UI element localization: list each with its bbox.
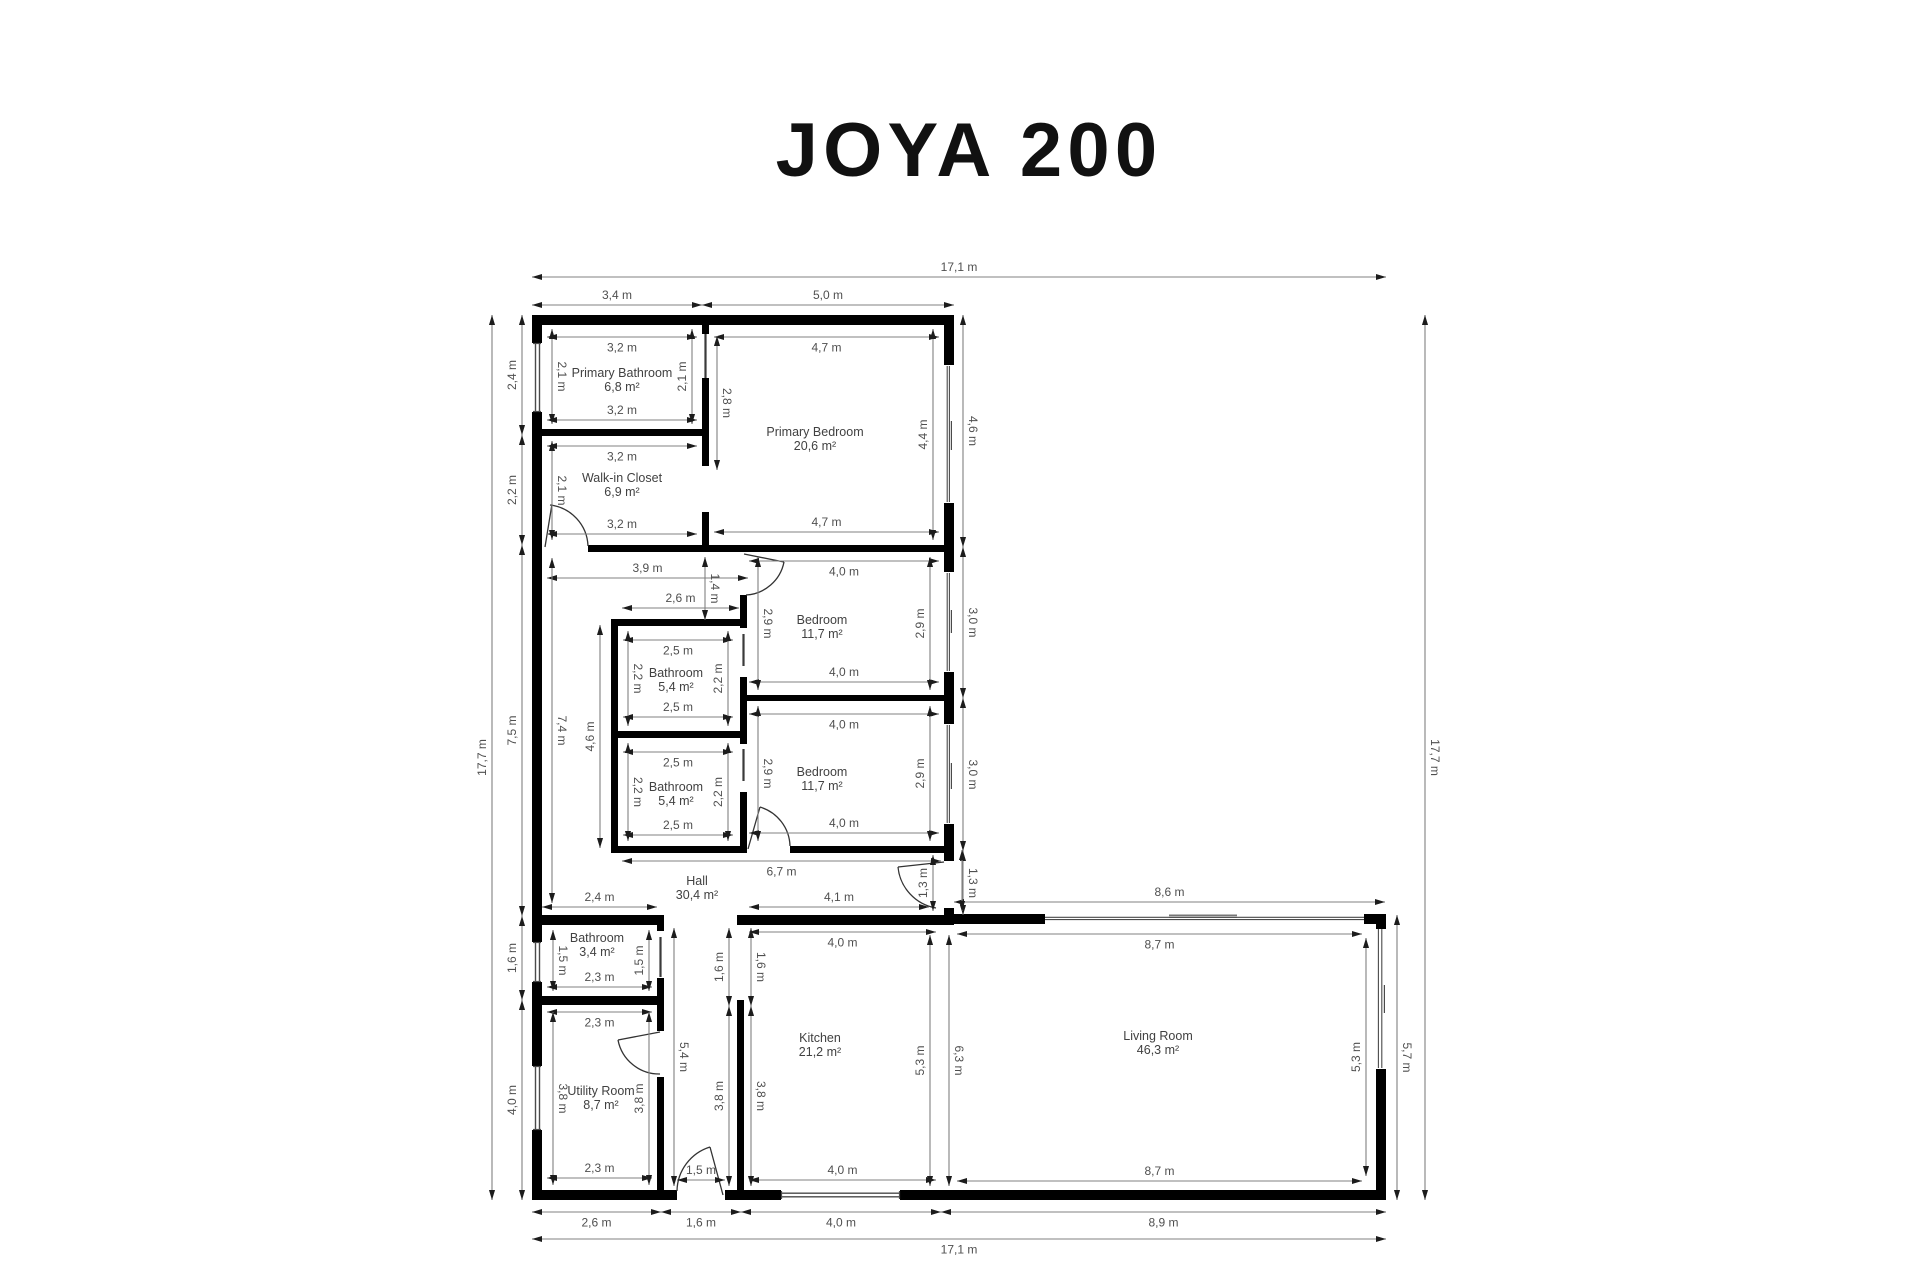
svg-text:8,7 m²: 8,7 m² [583,1098,618,1112]
svg-text:17,7 m: 17,7 m [475,739,489,776]
svg-text:2,9 m: 2,9 m [913,758,927,788]
svg-text:8,7 m: 8,7 m [1144,1164,1174,1178]
svg-text:4,0 m: 4,0 m [505,1085,519,1115]
svg-text:17,1 m: 17,1 m [941,1243,978,1257]
svg-text:5,3 m: 5,3 m [1349,1042,1363,1072]
svg-text:1,5 m: 1,5 m [686,1163,716,1177]
svg-text:JOYA 200: JOYA 200 [776,108,1163,193]
svg-text:3,2 m: 3,2 m [607,403,637,417]
svg-text:4,0 m: 4,0 m [829,565,859,579]
svg-text:4,7 m: 4,7 m [811,341,841,355]
svg-text:4,6 m: 4,6 m [583,721,597,751]
svg-text:5,4 m²: 5,4 m² [658,794,693,808]
svg-text:4,4 m: 4,4 m [916,419,930,449]
svg-text:17,1 m: 17,1 m [941,260,978,274]
svg-text:Bedroom: Bedroom [797,765,848,779]
svg-text:Bathroom: Bathroom [649,666,703,680]
svg-text:3,2 m: 3,2 m [607,517,637,531]
svg-text:Kitchen: Kitchen [799,1031,841,1045]
svg-text:2,2 m: 2,2 m [631,663,645,693]
svg-text:Living Room: Living Room [1123,1029,1192,1043]
svg-text:2,1 m: 2,1 m [675,361,689,391]
svg-text:2,9 m: 2,9 m [913,608,927,638]
svg-text:3,8 m: 3,8 m [754,1081,768,1111]
svg-text:2,5 m: 2,5 m [663,756,693,770]
svg-text:2,3 m: 2,3 m [584,1161,614,1175]
svg-text:1,6 m: 1,6 m [712,952,726,982]
svg-text:4,0 m: 4,0 m [829,665,859,679]
svg-text:2,5 m: 2,5 m [663,700,693,714]
svg-text:5,3 m: 5,3 m [913,1045,927,1075]
svg-text:6,3 m: 6,3 m [952,1045,966,1075]
svg-text:Primary Bathroom: Primary Bathroom [572,366,673,380]
svg-text:2,3 m: 2,3 m [584,970,614,984]
svg-text:2,9 m: 2,9 m [761,608,775,638]
svg-text:2,4 m: 2,4 m [584,890,614,904]
svg-text:Bathroom: Bathroom [649,780,703,794]
svg-text:2,6 m: 2,6 m [581,1216,611,1230]
svg-text:1,5 m: 1,5 m [632,945,646,975]
svg-text:2,5 m: 2,5 m [663,818,693,832]
svg-text:1,6 m: 1,6 m [505,943,519,973]
svg-text:3,4 m²: 3,4 m² [579,945,614,959]
svg-text:2,9 m: 2,9 m [761,758,775,788]
svg-text:4,0 m: 4,0 m [826,1216,856,1230]
svg-text:Bathroom: Bathroom [570,931,624,945]
svg-text:3,2 m: 3,2 m [607,341,637,355]
svg-text:Utility Room: Utility Room [567,1084,634,1098]
svg-text:21,2 m²: 21,2 m² [799,1045,841,1059]
svg-text:8,7 m: 8,7 m [1144,938,1174,952]
svg-text:2,3 m: 2,3 m [584,1016,614,1030]
svg-text:1,3 m: 1,3 m [916,868,930,898]
svg-text:3,0 m: 3,0 m [966,607,980,637]
svg-text:8,6 m: 8,6 m [1154,885,1184,899]
svg-text:7,4 m: 7,4 m [555,715,569,745]
svg-text:2,6 m: 2,6 m [665,591,695,605]
svg-text:11,7 m²: 11,7 m² [801,779,842,793]
svg-text:8,9 m: 8,9 m [1148,1216,1178,1230]
svg-text:3,2 m: 3,2 m [607,450,637,464]
svg-text:4,0 m: 4,0 m [827,1163,857,1177]
svg-text:2,2 m: 2,2 m [505,475,519,505]
svg-text:Primary Bedroom: Primary Bedroom [766,425,863,439]
svg-text:3,4 m: 3,4 m [602,288,632,302]
svg-text:5,0 m: 5,0 m [813,288,843,302]
svg-text:6,8 m²: 6,8 m² [604,380,639,394]
svg-text:7,5 m: 7,5 m [505,715,519,745]
svg-text:1,4 m: 1,4 m [708,573,722,603]
svg-text:4,1 m: 4,1 m [824,890,854,904]
svg-text:4,0 m: 4,0 m [829,816,859,830]
svg-text:3,0 m: 3,0 m [966,759,980,789]
svg-text:3,8 m: 3,8 m [712,1081,726,1111]
svg-text:1,3 m: 1,3 m [966,868,980,898]
svg-text:4,6 m: 4,6 m [966,416,980,446]
svg-text:5,7 m: 5,7 m [1400,1042,1414,1072]
svg-text:Walk-in Closet: Walk-in Closet [582,471,663,485]
svg-text:20,6 m²: 20,6 m² [794,439,836,453]
svg-text:2,8 m: 2,8 m [720,388,734,418]
svg-text:1,5 m: 1,5 m [556,945,570,975]
svg-text:5,4 m²: 5,4 m² [658,680,693,694]
svg-text:30,4 m²: 30,4 m² [676,888,718,902]
svg-text:2,5 m: 2,5 m [663,644,693,658]
svg-text:4,0 m: 4,0 m [827,936,857,950]
svg-text:6,9 m²: 6,9 m² [604,485,639,499]
svg-text:2,2 m: 2,2 m [631,777,645,807]
svg-text:17,7 m: 17,7 m [1428,739,1442,776]
svg-text:1,6 m: 1,6 m [686,1216,716,1230]
svg-text:2,1 m: 2,1 m [555,361,569,391]
svg-text:2,2 m: 2,2 m [711,777,725,807]
svg-text:1,6 m: 1,6 m [754,952,768,982]
svg-text:5,4 m: 5,4 m [677,1042,691,1072]
svg-text:11,7 m²: 11,7 m² [801,627,842,641]
svg-text:Hall: Hall [686,874,708,888]
svg-text:4,7 m: 4,7 m [811,515,841,529]
svg-text:2,4 m: 2,4 m [505,360,519,390]
svg-text:3,9 m: 3,9 m [632,561,662,575]
svg-text:Bedroom: Bedroom [797,613,848,627]
svg-text:2,1 m: 2,1 m [555,475,569,505]
svg-text:6,7 m: 6,7 m [766,865,796,879]
svg-text:4,0 m: 4,0 m [829,718,859,732]
svg-text:2,2 m: 2,2 m [711,663,725,693]
svg-text:46,3 m²: 46,3 m² [1137,1043,1179,1057]
